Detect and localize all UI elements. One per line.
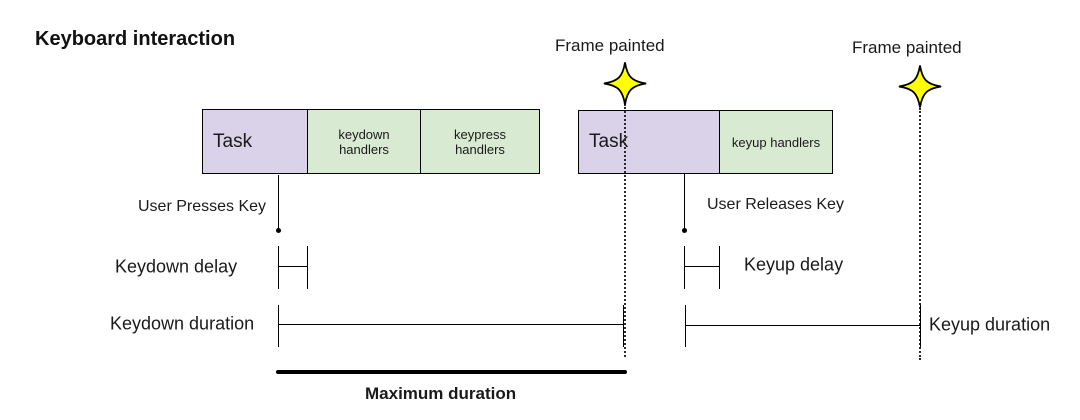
keydown-handlers-label: keydown handlers	[322, 127, 406, 157]
keydown-delay-label: Keydown delay	[115, 257, 237, 278]
task-box-keydown: Task	[202, 109, 308, 174]
keyup-delay-tick-left	[684, 246, 685, 289]
task-box-keyup: Task	[578, 110, 720, 174]
keyup-duration-span-line	[685, 325, 921, 326]
keyup-duration-label: Keyup duration	[929, 315, 1050, 336]
keypress-handlers-label: keypress handlers	[437, 127, 523, 157]
keyup-delay-label: Keyup delay	[744, 255, 843, 276]
frame-painted-star-icon-2	[898, 64, 942, 109]
frame-painted-star-icon-1	[603, 61, 647, 106]
user-presses-key-label: User Presses Key	[138, 198, 266, 216]
keydown-handlers-box: keydown handlers	[307, 109, 421, 174]
maximum-duration-label: Maximum duration	[365, 384, 516, 404]
keydown-duration-label: Keydown duration	[110, 314, 254, 335]
keydown-duration-tick-right	[623, 305, 624, 347]
frame-paint-dotted-line-1	[624, 104, 626, 357]
diagram-title: Keyboard interaction	[35, 28, 235, 51]
user-releases-key-label: User Releases Key	[707, 196, 844, 214]
keydown-duration-span-line	[278, 324, 624, 325]
frame-painted-label-2: Frame painted	[852, 38, 962, 58]
keydown-duration-tick-left	[278, 305, 279, 347]
keyup-handlers-label: keyup handlers	[732, 135, 820, 150]
keydown-delay-span-line	[278, 266, 308, 267]
frame-painted-label-1: Frame painted	[555, 36, 665, 56]
keypress-handlers-box: keypress handlers	[420, 109, 540, 174]
maximum-duration-line	[276, 370, 627, 374]
keydown-delay-tick-left	[278, 246, 279, 289]
keydown-delay-tick-right	[307, 246, 308, 289]
user-releases-key-line	[684, 174, 685, 229]
user-releases-key-dot	[682, 228, 687, 233]
keyup-delay-tick-right	[719, 246, 720, 289]
keyup-duration-tick-right	[920, 305, 921, 347]
keyboard-interaction-diagram: Keyboard interaction Frame painted Frame…	[0, 0, 1080, 420]
user-presses-key-line	[278, 175, 279, 229]
task-box-keyup-label: Task	[589, 131, 628, 153]
keyup-delay-span-line	[684, 266, 720, 267]
keyup-handlers-box: keyup handlers	[719, 110, 833, 174]
user-presses-key-dot	[276, 228, 281, 233]
task-box-keydown-label: Task	[213, 131, 252, 153]
keyup-duration-tick-left	[685, 305, 686, 347]
